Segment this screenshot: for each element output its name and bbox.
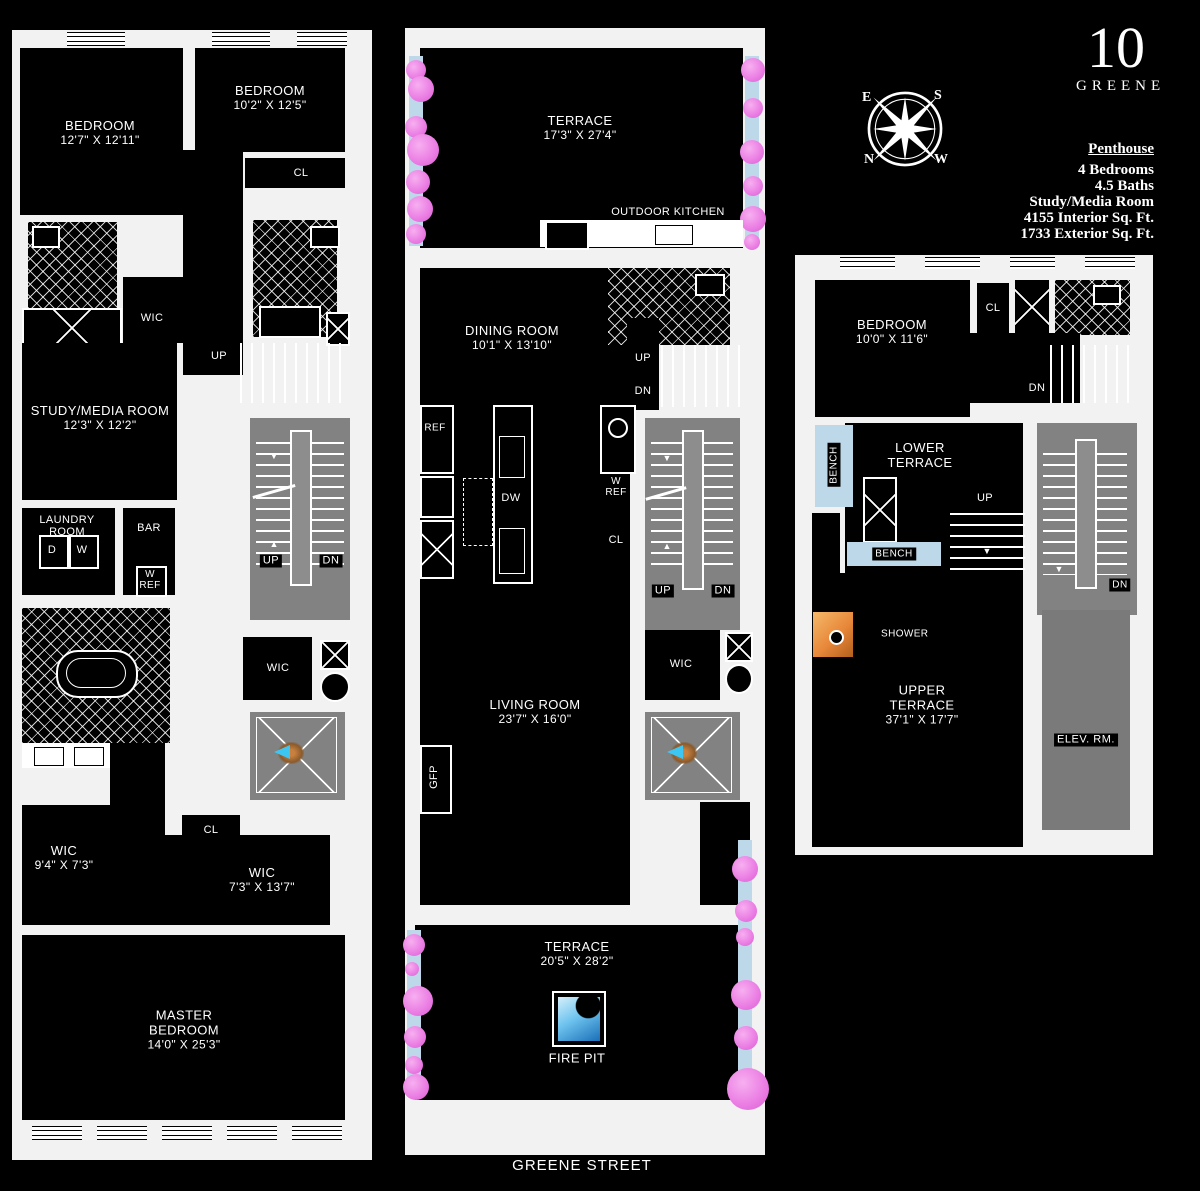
compass-s: S	[934, 88, 942, 104]
stair-core	[682, 430, 704, 590]
skylight-shaft	[725, 632, 753, 662]
room-name: TERRACE	[543, 113, 616, 128]
plant	[727, 1068, 769, 1110]
stair-arrow-icon: ▼	[1055, 564, 1064, 574]
unit-info-block: Penthouse 4 Bedrooms 4.5 Baths Study/Med…	[1021, 141, 1154, 242]
island-range	[499, 528, 525, 574]
label-cl-4: CL	[609, 534, 624, 546]
plant	[734, 1026, 758, 1050]
pantry-dashed	[463, 478, 493, 546]
label-cl-1: CL	[294, 167, 309, 179]
label-bar: BAR	[137, 522, 161, 534]
room-dims: 12'7" X 12'11"	[60, 133, 139, 148]
room-wic-1	[123, 277, 183, 343]
label-dw: DW	[501, 492, 520, 504]
window	[67, 32, 125, 46]
label-dryer: D	[48, 544, 56, 556]
room-bedroom-4	[815, 280, 970, 417]
info-line: 1733 Exterior Sq. Ft.	[1021, 226, 1154, 242]
info-line: Study/Media Room	[1021, 194, 1154, 210]
label-ref: REF	[424, 423, 445, 434]
window	[1010, 257, 1055, 269]
room-label-study: STUDY/MEDIA ROOM 12'3" X 12'2"	[31, 403, 170, 433]
label-cl-3: CL	[204, 824, 219, 836]
room-name: UPPER	[885, 683, 958, 698]
fire-pit	[552, 991, 606, 1047]
room-label-lower-terrace: LOWER TERRACE	[888, 440, 953, 470]
label-wine-ref: W REF	[139, 569, 160, 591]
room-label-terrace-top: TERRACE 17'3" X 27'4"	[543, 113, 616, 143]
window	[227, 1126, 277, 1140]
room-name: LAUNDRY	[39, 514, 94, 526]
room-dims: 20'5" X 28'2"	[540, 954, 613, 969]
planter-box	[812, 513, 840, 577]
info-line: 4155 Interior Sq. Ft.	[1021, 210, 1154, 226]
label-cl-5: CL	[986, 302, 1001, 314]
info-line: 4.5 Baths	[1021, 178, 1154, 194]
room-dims: 9'4" X 7'3"	[35, 858, 94, 873]
street-label: GREENE STREET	[462, 1157, 702, 1174]
compass-e: E	[862, 90, 871, 106]
window	[292, 1126, 342, 1140]
stairwell: ▼ ▲	[250, 418, 350, 620]
stair-flight	[1095, 453, 1127, 575]
room-name: TERRACE	[888, 455, 953, 470]
room-label-master: MASTER BEDROOM 14'0" X 25'3"	[147, 1008, 220, 1053]
toilet-fixture	[695, 274, 725, 296]
toilet-fixture	[1093, 285, 1121, 305]
stair-core	[1075, 439, 1097, 589]
plant	[736, 928, 754, 946]
skylight-arrow-icon	[274, 745, 290, 759]
stair-arrow-icon: ▼	[983, 546, 992, 556]
plant	[740, 206, 766, 232]
room-name: DINING ROOM	[465, 323, 559, 338]
washer-drum-icon	[608, 418, 628, 438]
stair-arrow-icon: ▼	[270, 451, 279, 461]
stair-dn-label: DN	[712, 585, 735, 598]
plant	[740, 140, 764, 164]
room-dims: 10'1" X 13'10"	[465, 338, 559, 353]
label-dn-mid: DN	[635, 385, 652, 397]
wref-line: REF	[605, 487, 626, 498]
hallway	[110, 743, 165, 925]
label-wic-5: WIC	[670, 658, 693, 670]
stair-arrow-icon: ▲	[270, 539, 279, 549]
room-name: TERRACE	[885, 698, 958, 713]
stairs-mid	[661, 345, 745, 407]
room-label-wic-4: WIC 7'3" X 13'7"	[229, 865, 295, 895]
stair-arrow-icon: ▲	[663, 541, 672, 551]
room-label-bedroom-2: BEDROOM 10'2" X 12'5"	[233, 83, 306, 113]
label-dn-top: DN	[1029, 382, 1046, 394]
room-name: TERRACE	[540, 939, 613, 954]
info-line: 4 Bedrooms	[1021, 162, 1154, 178]
room-label-dining: DINING ROOM 10'1" X 13'10"	[465, 323, 559, 353]
shower-stall	[1015, 280, 1049, 334]
label-wic-2: WIC	[267, 662, 290, 674]
skylight-shaft	[320, 640, 350, 670]
room-name: LOWER	[888, 440, 953, 455]
plant	[405, 962, 419, 976]
washer-column	[600, 405, 636, 474]
skylight-shaft	[326, 312, 350, 346]
stair-dn-label: DN	[1109, 579, 1130, 592]
label-bench-2: BENCH	[872, 548, 916, 561]
plant	[407, 134, 439, 166]
room-name: WIC	[229, 865, 295, 880]
outdoor-shower	[813, 612, 853, 657]
label-fire-pit: FIRE PIT	[549, 1051, 606, 1066]
right-floor-plan: ▼ ▼ DN BEDROOM 10'0" X 11'6" CL DN LOWER…	[795, 255, 1153, 855]
window	[297, 32, 347, 46]
label-outdoor-kitchen: OUTDOOR KITCHEN	[611, 206, 725, 218]
fridge-fixture	[420, 405, 454, 474]
lounge-fixture	[863, 477, 897, 543]
room-dims: 17'3" X 27'4"	[543, 128, 616, 143]
plant	[732, 856, 758, 882]
plant	[741, 58, 765, 82]
label-washer: W	[77, 544, 88, 556]
plant	[406, 224, 426, 244]
room-dims: 37'1" X 17'7"	[885, 713, 958, 728]
label-elev-rm: ELEV. RM.	[1054, 734, 1118, 747]
bathtub-inner	[66, 658, 126, 688]
stair-arrow-icon: ▼	[663, 453, 672, 463]
skylight-1	[250, 712, 345, 800]
room-name: MASTER	[147, 1008, 220, 1023]
sink-fixture	[34, 747, 64, 766]
window	[32, 1126, 82, 1140]
stair-flight	[256, 442, 294, 572]
outdoor-sink-fixture	[655, 225, 693, 245]
vent-fixture	[320, 672, 350, 702]
room-label-living: LIVING ROOM 23'7" X 16'0"	[489, 697, 580, 727]
stair-up-label: UP	[260, 555, 282, 568]
room-label-terrace-bottom: TERRACE 20'5" X 28'2"	[540, 939, 613, 969]
skylight-arrow-icon	[667, 745, 683, 759]
room-name: WIC	[35, 843, 94, 858]
room-dims: 23'7" X 16'0"	[489, 712, 580, 727]
plant	[404, 1026, 426, 1048]
label-wic-1: WIC	[141, 312, 164, 324]
room-name: STUDY/MEDIA ROOM	[31, 403, 170, 418]
plant	[744, 234, 760, 250]
stairwell: ▼ ▲	[645, 418, 740, 630]
room-terrace-top	[420, 48, 743, 248]
label-shower: SHOWER	[881, 629, 928, 640]
room-name: BEDROOM	[60, 118, 139, 133]
tub-fixture	[259, 306, 321, 338]
compass-w: W	[934, 152, 948, 168]
toilet-fixture	[310, 226, 340, 248]
room-label-wic-3: WIC 9'4" X 7'3"	[35, 843, 94, 873]
floorplan-canvas: ▼ ▲ UP DN	[0, 0, 1200, 1191]
plant	[735, 900, 757, 922]
room-label-laundry: LAUNDRY ROOM	[39, 514, 94, 538]
stair-dn-label: DN	[320, 555, 343, 568]
left-floor-plan: ▼ ▲ UP DN	[12, 30, 372, 1160]
sink-fixture	[74, 747, 104, 766]
plant	[403, 986, 433, 1016]
window	[97, 1126, 147, 1140]
grill-fixture	[545, 221, 589, 250]
room-name: BEDROOM	[856, 317, 928, 332]
stairs-up-top	[240, 343, 348, 403]
label-up: UP	[977, 492, 993, 504]
cabinet-fixture	[420, 476, 454, 518]
label-wine-ref: W REF	[605, 476, 626, 498]
stair-flight	[1043, 453, 1075, 575]
stair-up-label: UP	[652, 585, 674, 598]
middle-floor-plan: ▼ ▲ UP DN TERRACE	[405, 28, 765, 1155]
plant	[731, 980, 761, 1010]
room-dims: 10'2" X 12'5"	[233, 98, 306, 113]
room-label-bedroom-4: BEDROOM 10'0" X 11'6"	[856, 317, 928, 347]
plant	[403, 934, 425, 956]
plant	[408, 76, 434, 102]
room-name: BEDROOM	[233, 83, 306, 98]
room-dims: 7'3" X 13'7"	[229, 880, 295, 895]
compass-n: N	[864, 152, 874, 168]
label-up-mid: UP	[635, 352, 651, 364]
plant	[743, 176, 763, 196]
shower-fixture	[22, 308, 122, 348]
unit-title: Penthouse	[1021, 141, 1154, 157]
stair-core	[290, 430, 312, 586]
window	[840, 257, 895, 269]
window	[162, 1126, 212, 1140]
room-dims: 14'0" X 25'3"	[147, 1038, 220, 1053]
room-name: LIVING ROOM	[489, 697, 580, 712]
wref-line: REF	[139, 580, 160, 591]
compass-rose: E S N W	[852, 76, 958, 182]
room-name: ROOM	[39, 526, 94, 538]
label-up-top: UP	[211, 350, 227, 362]
room-label-upper-terrace: UPPER TERRACE 37'1" X 17'7"	[885, 683, 958, 728]
brand-number: 10	[1076, 18, 1156, 78]
window	[1085, 257, 1135, 269]
plant	[405, 1056, 423, 1074]
brand-name: GREENE	[1076, 78, 1156, 95]
island-sink	[499, 436, 525, 478]
window	[925, 257, 980, 269]
plant	[407, 196, 433, 222]
label-bench-1: BENCH	[828, 443, 841, 487]
room-elev	[1042, 635, 1130, 830]
hallway	[183, 150, 243, 375]
brand-logo: 10 GREENE	[1076, 18, 1156, 95]
room-dims: 12'3" X 12'2"	[31, 418, 170, 433]
plant	[743, 98, 763, 118]
vent-fixture	[725, 664, 753, 694]
room-name: BEDROOM	[147, 1023, 220, 1038]
wref-line: W	[139, 569, 160, 580]
stairs-dn	[1050, 345, 1138, 403]
skylight-2	[645, 712, 740, 800]
stairs-terrace	[950, 513, 1025, 575]
stair-flight	[699, 442, 733, 574]
plant	[403, 1074, 429, 1100]
wref-line: W	[605, 476, 626, 487]
window	[212, 32, 270, 46]
label-gfp: GFP	[428, 762, 440, 792]
room-label-bedroom-1: BEDROOM 12'7" X 12'11"	[60, 118, 139, 148]
plant	[406, 170, 430, 194]
cabinet-fixture	[420, 520, 454, 579]
toilet-fixture	[32, 226, 60, 248]
room-dims: 10'0" X 11'6"	[856, 332, 928, 347]
